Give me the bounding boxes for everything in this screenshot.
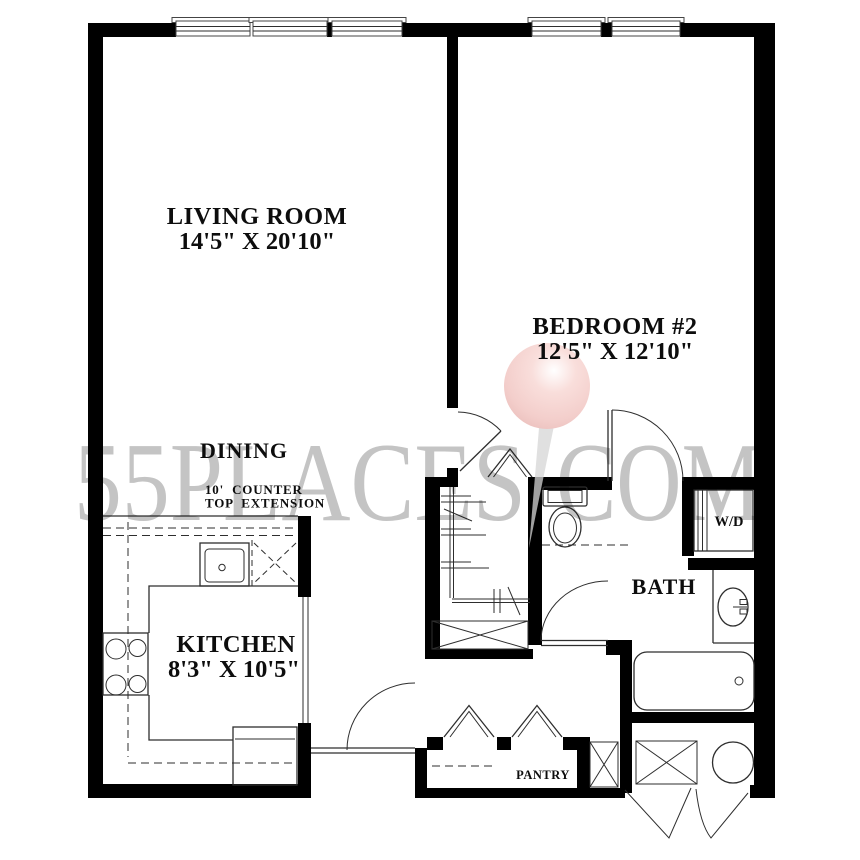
wall-pantry-bottom [427,788,577,798]
window [608,18,684,37]
window [172,18,254,37]
wall-right-outer [754,23,775,798]
corner-cabinet [252,540,296,586]
wall-left-outer [88,23,103,798]
closet-shelf-x [432,621,528,649]
wall-pantry-stub [427,737,443,750]
kitchen-opening-jambs [303,597,308,723]
entry-table [713,742,754,783]
kitchen-door [311,683,415,753]
window [249,18,331,37]
wall-closet-bottom [425,649,533,659]
wall-wd-bottom [688,558,758,570]
wall-bottom-left [88,784,311,798]
entry-closet-x [636,741,697,784]
kitchen-label: KITCHEN [176,631,295,658]
bedroom2-label: BEDROOM #2 [533,313,698,340]
bedroom2-dims: 12'5" X 12'10" [537,338,694,365]
wall-tub-bottom [620,712,757,723]
wall-top-seg [601,23,612,37]
wall-kitchen-east-lower [298,723,311,798]
dishwasher [233,727,297,785]
wall-top-seg [680,23,760,37]
wall-top-seg [88,23,176,37]
bath-label: BATH [632,574,697,599]
wall-entry-bottom-left [590,788,625,798]
wall-pantry-stub [563,737,577,750]
wall-pantry-east [577,737,590,798]
stove [103,633,148,695]
entry-fixtures [432,741,754,787]
window [528,18,605,37]
utility-closet-x [590,742,618,787]
wd-label: W/D [715,514,744,530]
living-room-dims: 14'5" X 20'10" [179,228,336,255]
living-room-label: LIVING ROOM [167,203,347,230]
wall-top-seg [327,23,332,37]
pantry-label: PANTRY [516,768,570,782]
closet-hangers [494,587,520,615]
wall-kitchen-door-stub [415,748,427,798]
kitchen-sink [200,543,249,586]
kitchen-dims: 8'3" X 10'5" [168,656,300,683]
counter-note-line2: TOP EXTENSION [205,496,325,511]
wall-entry-bottom-right [750,785,775,798]
window [328,18,406,37]
bath-door [541,581,608,646]
floor-plan-image: 55PLACES COM LIVING ROOM 14'5" X 20'10" … [0,0,860,860]
closet-rod-horizontal [452,599,530,603]
bathtub [634,652,754,710]
entry-doors [625,788,748,838]
pantry-bifold-doors [444,706,562,738]
wall-top-seg [402,23,532,37]
wall-living-bedroom [447,37,458,408]
dining-label: DINING [200,438,288,463]
bath-sink [718,588,748,626]
wall-pantry-stub [497,737,511,750]
